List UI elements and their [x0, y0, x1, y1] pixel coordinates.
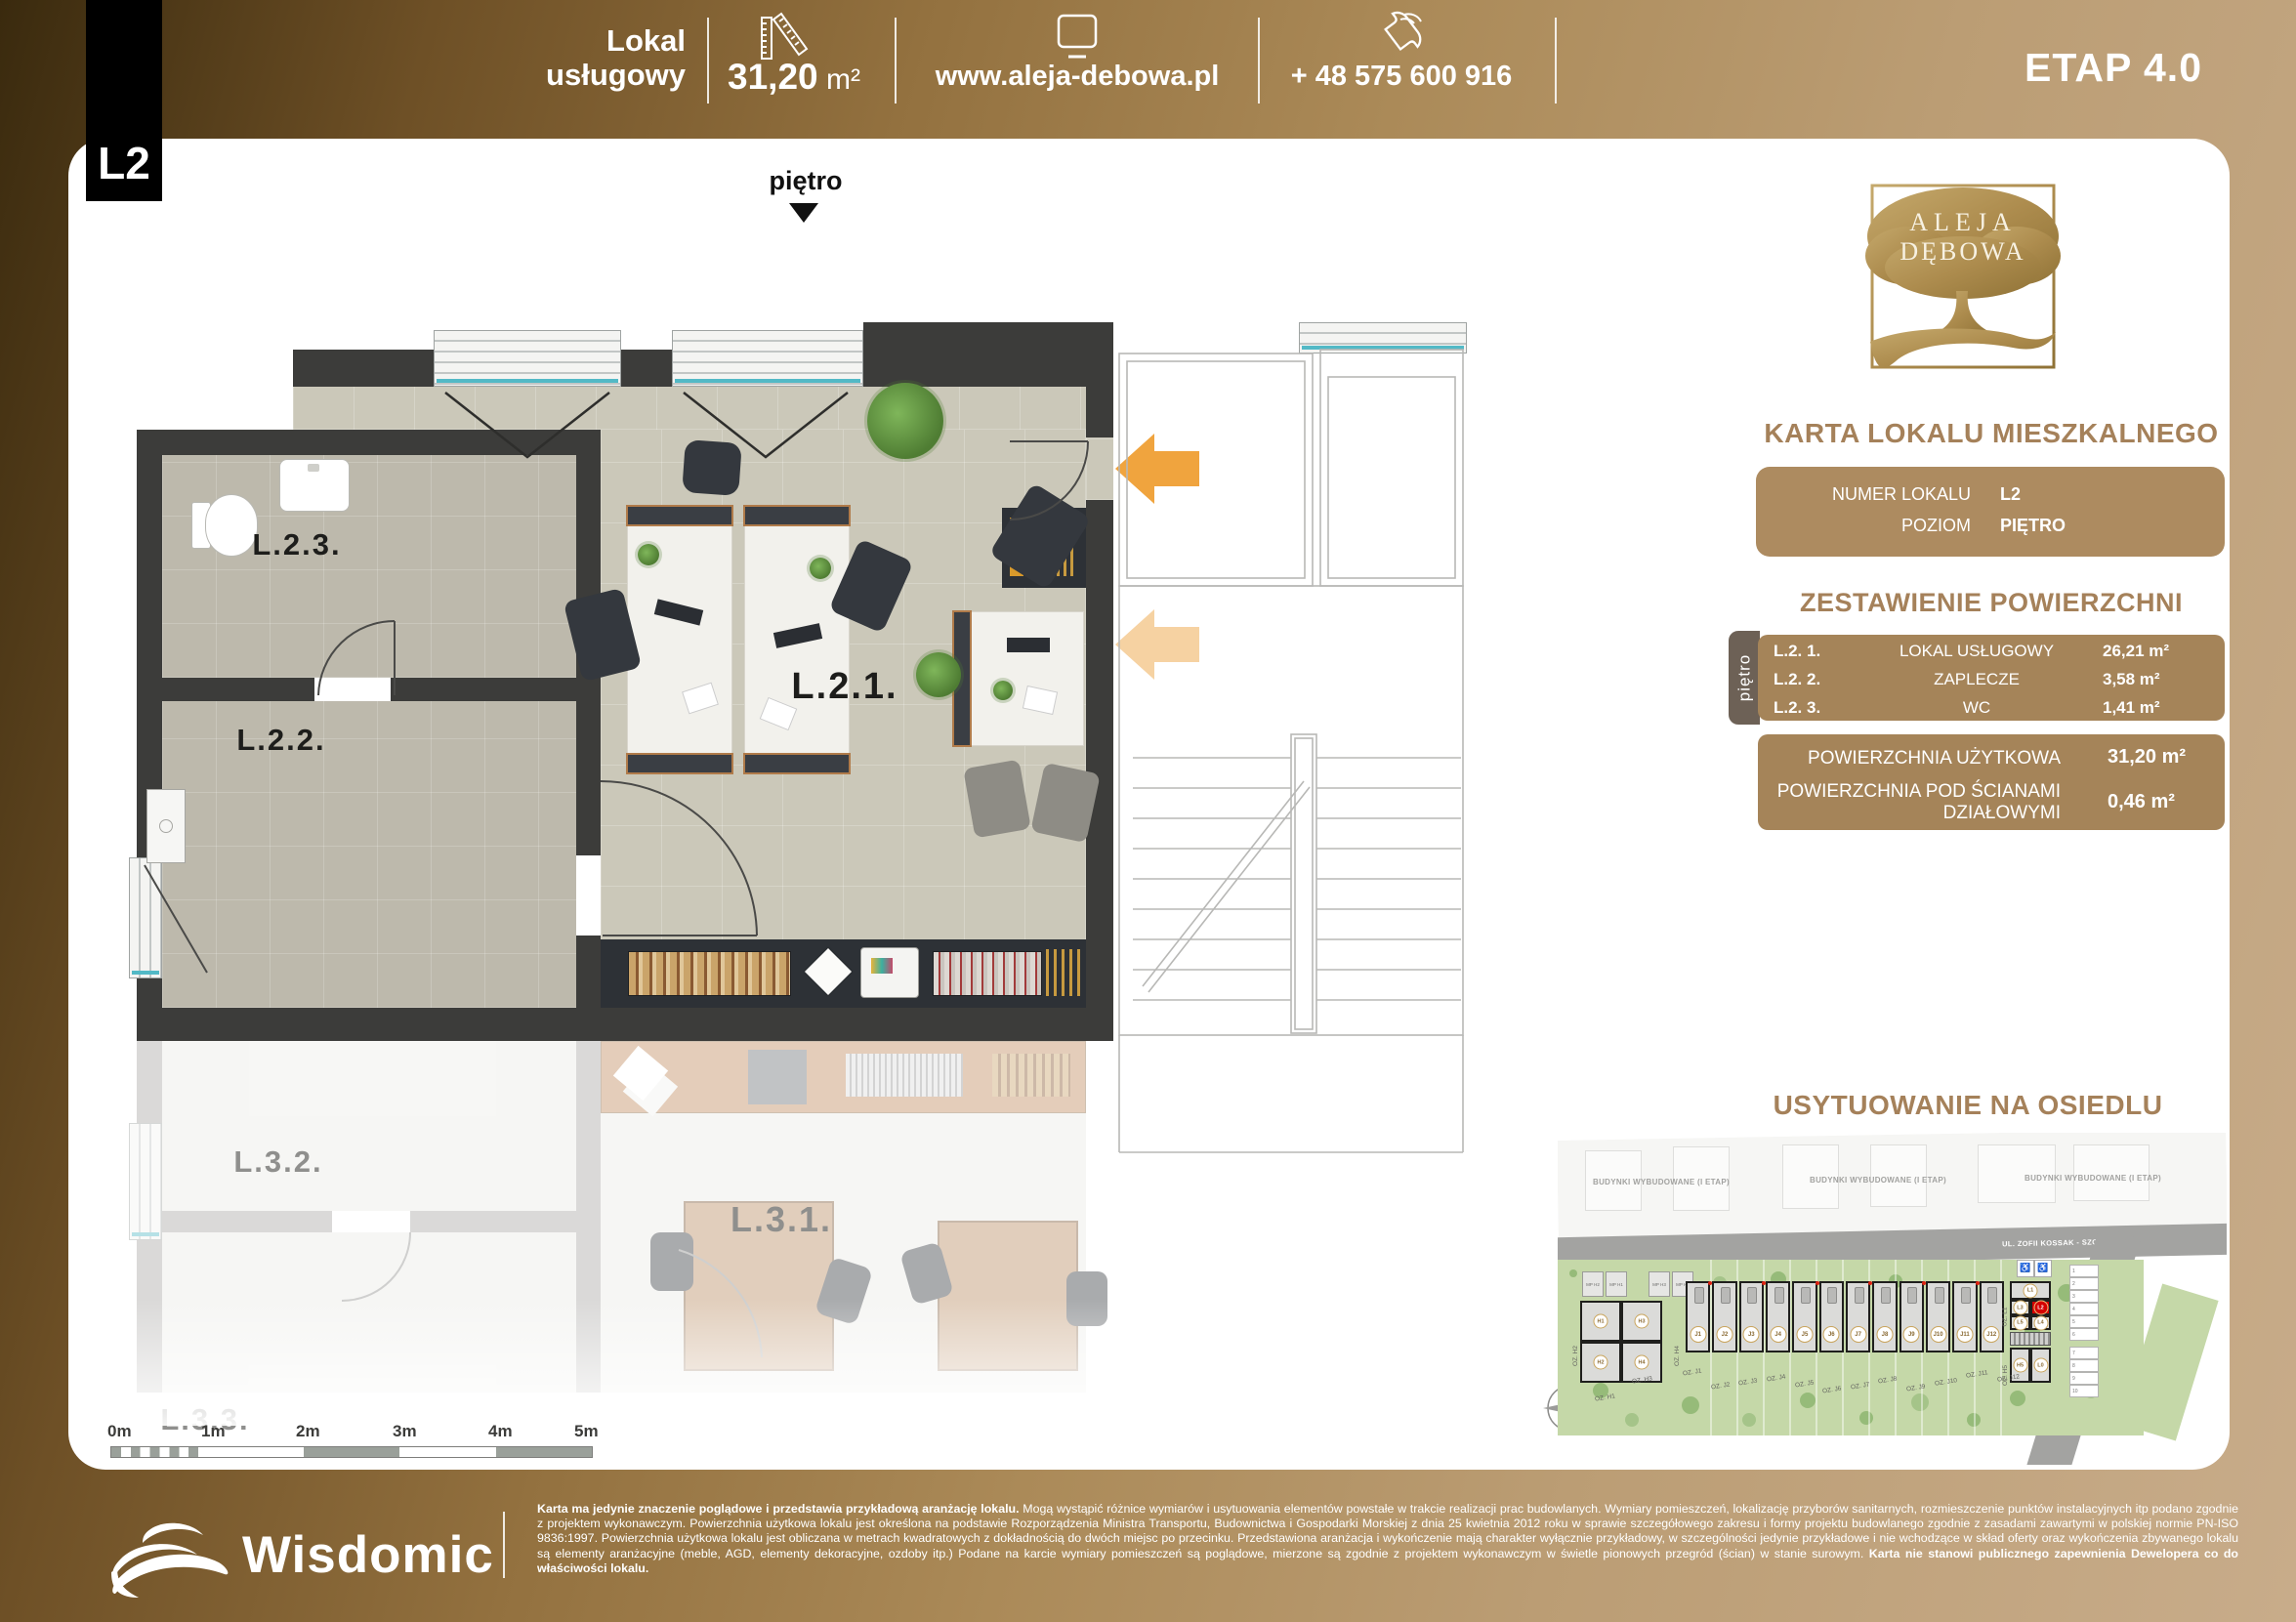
table-row: L.2. 2. ZAPLECZE 3,58 m² [1758, 665, 2225, 693]
card-title: KARTA LOKALU MIESZKALNEGO [1753, 418, 2230, 449]
room-id: L.2. 3. [1758, 698, 1851, 718]
numer-label: NUMER LOKALU [1775, 484, 1971, 505]
parking-mp: MP H1 [1606, 1271, 1627, 1297]
parking-stall: 6 [2069, 1328, 2099, 1341]
table-row: L.2. 3. WC 1,41 m² [1758, 693, 2225, 722]
areas-title: ZESTAWIENIE POWIERZCHNI [1753, 588, 2230, 618]
totals-box: POWIERZCHNIA UŻYTKOWA 31,20 m² POWIERZCH… [1758, 734, 2225, 830]
room-id: L.2. 1. [1758, 642, 1851, 661]
unit-h[interactable]: H2 [1594, 1355, 1608, 1370]
scale-label: 5m [574, 1422, 599, 1441]
j-row: J1 J2 J3 J4 J5 J6 J7 J8 J9 J10 J11 J12 [1686, 1281, 2004, 1352]
unit-h[interactable]: H3 [1635, 1314, 1649, 1329]
footer-divider [503, 1512, 505, 1578]
unit-h[interactable]: H1 [1594, 1314, 1608, 1329]
unit-j[interactable]: J4 [1766, 1281, 1790, 1352]
sitemap: BUDYNKI WYBUDOWANE (I ETAP) BUDYNKI WYBU… [1558, 1133, 2227, 1465]
unit-j[interactable]: J11 [1952, 1281, 1977, 1352]
scale-label: 2m [296, 1422, 320, 1441]
oz-label: OZ. H4 [1674, 1346, 1681, 1366]
table-row: L.2. 1. LOKAL USŁUGOWY 26,21 m² [1758, 637, 2225, 665]
accessible-parking: ♿ [2034, 1260, 2052, 1277]
unit-j[interactable]: J8 [1872, 1281, 1897, 1352]
room-id: L.2. 2. [1758, 670, 1851, 689]
room-label-L31: L.3.1. [684, 1199, 879, 1240]
svg-text:DĘBOWA: DĘBOWA [1899, 237, 2025, 266]
unit-l0[interactable]: L0 [2030, 1348, 2051, 1383]
l-block-hatch [2010, 1332, 2051, 1346]
unit-j[interactable]: J9 [1899, 1281, 1924, 1352]
sitemap-title: USYTUOWANIE NA OSIEDLU [1719, 1090, 2217, 1121]
room-name: ZAPLECZE [1851, 670, 2103, 689]
unit-j[interactable]: J3 [1739, 1281, 1764, 1352]
parking-stall: 4 [2069, 1303, 2099, 1315]
parking-stall: 8 [2069, 1359, 2099, 1372]
parking-stall: 7 [2069, 1347, 2099, 1359]
page: Lokal usługowy 31,20 m² www.aleja-debowa… [0, 0, 2296, 1622]
built-label: BUDYNKI WYBUDOWANE (I ETAP) [2025, 1174, 2161, 1183]
svg-text:ALEJA: ALEJA [1909, 208, 2016, 236]
total-value: 0,46 m² [2108, 791, 2175, 813]
room-area: 26,21 m² [2103, 642, 2225, 661]
built-label: BUDYNKI WYBUDOWANE (I ETAP) [1593, 1178, 1730, 1186]
aleja-debowa-tree-logo: ALEJA DĘBOWA [1851, 166, 2075, 391]
rooms-table: L.2. 1. LOKAL USŁUGOWY 26,21 m² L.2. 2. … [1758, 635, 2225, 721]
unit-info-box: NUMER LOKALU L2 POZIOM PIĘTRO [1756, 467, 2225, 557]
fade-overlay [88, 1299, 1475, 1426]
unit-l1[interactable]: L1 [2010, 1281, 2051, 1300]
unit-j[interactable]: J10 [1926, 1281, 1950, 1352]
floor-tab-label: piętro [1734, 654, 1754, 702]
scale-bar [110, 1446, 593, 1458]
unit-j[interactable]: J6 [1819, 1281, 1844, 1352]
parking-stall: 1 [2069, 1265, 2099, 1277]
unit-j[interactable]: J7 [1846, 1281, 1870, 1352]
unit-j[interactable]: J5 [1792, 1281, 1816, 1352]
unit-l2-highlighted[interactable]: L2 [2030, 1300, 2051, 1315]
parking-mp: MP H2 [1582, 1271, 1604, 1297]
oz-label: OZ. L1 [2001, 1308, 2008, 1327]
unit-j[interactable]: J2 [1712, 1281, 1736, 1352]
unit-l4[interactable]: L4 [2030, 1315, 2051, 1330]
parking-stall: 9 [2069, 1372, 2099, 1385]
room-name: LOKAL USŁUGOWY [1851, 642, 2103, 661]
parking-stall: 5 [2069, 1315, 2099, 1328]
wisdomic-wave-icon [109, 1504, 232, 1601]
accessible-parking: ♿ [2017, 1260, 2034, 1277]
parking-strip: 1 2 3 4 5 6 7 8 9 10 [2069, 1265, 2099, 1397]
wisdomic-brand: Wisdomic [242, 1525, 494, 1585]
parking-mp: MP H3 [1649, 1271, 1670, 1297]
scale-label: 4m [488, 1422, 513, 1441]
room-area: 1,41 m² [2103, 698, 2225, 718]
unit-l3[interactable]: L3 [2010, 1300, 2030, 1315]
total-label: POWIERZCHNIA UŻYTKOWA [1768, 748, 2061, 769]
parking-stall: 2 [2069, 1277, 2099, 1290]
room-name: WC [1851, 698, 2103, 718]
numer-value: L2 [2000, 484, 2021, 505]
unit-l5[interactable]: L5 [2010, 1315, 2030, 1330]
poziom-value: PIĘTRO [2000, 516, 2066, 536]
oz-j-row: OZ. J1 OZ. J2 OZ. J3 OZ. J4 OZ. J5 OZ. J… [1683, 1375, 2020, 1382]
trees [1569, 1269, 1577, 1277]
unit-h[interactable]: H4 [1635, 1355, 1649, 1370]
room-label-L32: L.3.2. [210, 1144, 347, 1180]
total-label: POWIERZCHNIA POD ŚCIANAMI DZIAŁOWYMI [1768, 781, 2061, 824]
unit-j[interactable]: J12 [1980, 1281, 2004, 1352]
unit-j[interactable]: J1 [1686, 1281, 1710, 1352]
scale-label: 3m [393, 1422, 417, 1441]
poziom-label: POZIOM [1775, 516, 1971, 536]
parking-stall: 10 [2069, 1385, 2099, 1397]
scale-label: 1m [201, 1422, 226, 1441]
scale-label: 0m [107, 1422, 132, 1441]
footer-disclaimer: Karta ma jedynie znaczenie poglądowe i p… [537, 1502, 2238, 1576]
total-value: 31,20 m² [2108, 746, 2186, 769]
built-label: BUDYNKI WYBUDOWANE (I ETAP) [1810, 1176, 1946, 1185]
disclaimer-intro: Karta ma jedynie znaczenie poglądowe i p… [537, 1502, 1020, 1516]
floor-tab: piętro [1729, 631, 1760, 725]
room-area: 3,58 m² [2103, 670, 2225, 689]
oz-label: OZ. H2 [1572, 1346, 1579, 1366]
parking-stall: 3 [2069, 1290, 2099, 1303]
h-block: H1 H3 H2 H4 [1580, 1301, 1662, 1383]
